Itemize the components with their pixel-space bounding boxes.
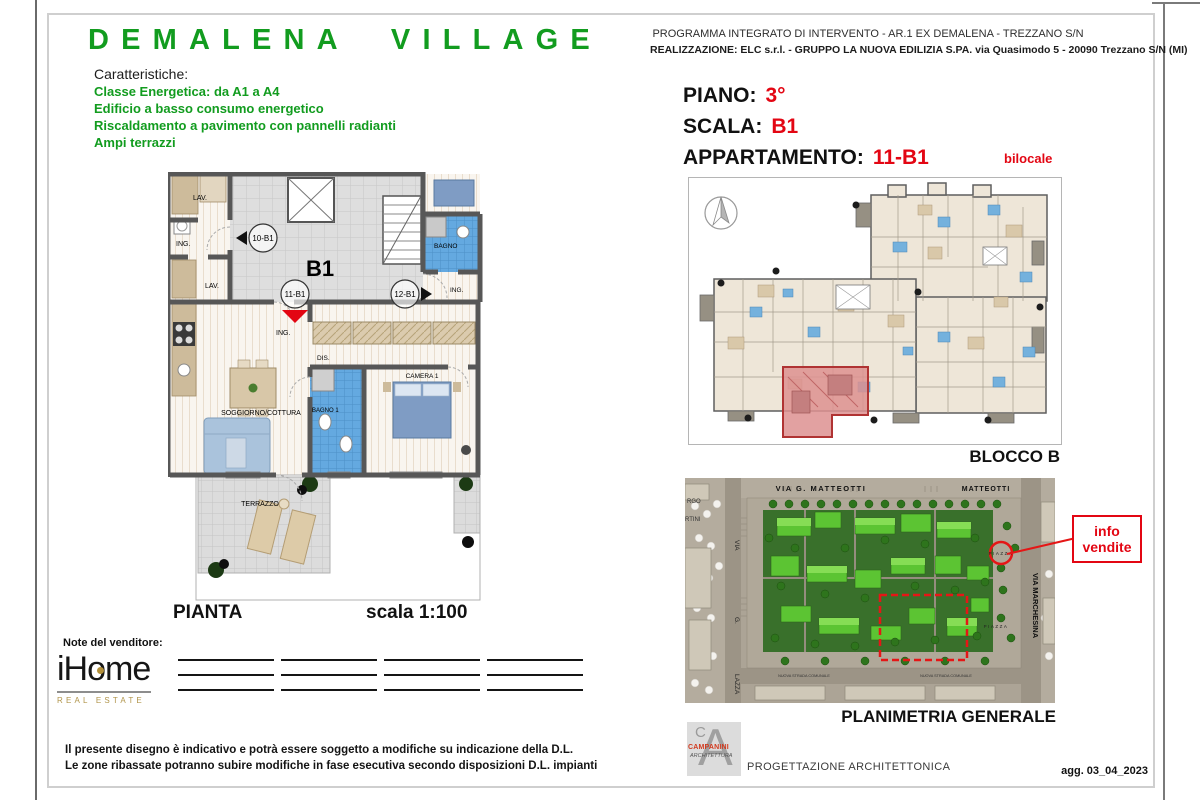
info-vendite-line2: vendite <box>1082 539 1131 555</box>
room-label-bagno1: BAGNO 1 <box>312 408 339 414</box>
ihome-rule <box>57 691 151 693</box>
dining-table <box>230 360 276 416</box>
block-b-plan <box>688 177 1062 445</box>
north-arrow-icon <box>705 197 737 229</box>
revision-date: agg. 03_04_2023 <box>1038 765 1148 777</box>
svg-text:11-B1: 11-B1 <box>285 290 306 299</box>
campanini-name: CAMPANINI <box>688 744 729 751</box>
elevator <box>288 178 334 222</box>
stair-block-label: B1 <box>306 256 334 281</box>
room-label-soggiorno: SOGGIORNO/COTTURA <box>221 410 301 417</box>
seller-notes-label: Note del venditore: <box>63 637 163 649</box>
plan-caption: PIANTA <box>173 602 242 624</box>
note-line <box>178 689 583 691</box>
plan-sheet: DEMALENA VILLAGE Caratteristiche: Classe… <box>0 0 1200 800</box>
campanini-c-glyph: C <box>695 724 706 741</box>
scala-label: SCALA: <box>683 115 762 138</box>
svg-text:10-B1: 10-B1 <box>252 234 274 243</box>
room-label-ing-left: ING. <box>176 241 190 248</box>
tipologia-badge: bilocale <box>1004 151 1052 166</box>
street-matteotti: MATTEOTTI <box>962 486 1011 493</box>
ihome-dot-icon <box>97 667 104 674</box>
room-label-bagno-neighbor: BAGNO <box>434 243 457 250</box>
room-label-ing-apt: ING. <box>276 330 290 337</box>
street-strada-2: NUOVA STRADA COMUNALE <box>920 674 972 678</box>
street-rgo: RGO <box>687 499 701 505</box>
feature-floor-heating: Riscaldamento a pavimento con pannelli r… <box>94 118 396 133</box>
room-label-terrazzo: TERRAZZO <box>241 501 279 508</box>
room-label-ing-right: ING. <box>450 287 464 294</box>
street-rtini: RTINI <box>685 517 701 523</box>
ihome-logo: iHome REAL ESTATE <box>57 650 167 720</box>
appartamento-value: 11-B1 <box>873 146 929 169</box>
street-g: G. <box>733 617 740 624</box>
svg-text:12-B1: 12-B1 <box>394 290 416 299</box>
room-label-camera1: CAMERA 1 <box>406 373 439 380</box>
appartamento-label: APPARTAMENTO: <box>683 146 864 169</box>
sofa <box>204 418 270 474</box>
scala-row: SCALA:B1 <box>683 115 798 139</box>
project-title: DEMALENA VILLAGE <box>88 24 602 57</box>
street-strada-1: NUOVA STRADA COMUNALE <box>778 674 830 678</box>
piano-value: 3° <box>766 84 786 107</box>
site-plan-caption: PLANIMETRIA GENERALE <box>750 707 1056 727</box>
block-b-caption: BLOCCO B <box>860 447 1060 467</box>
feature-energy-class: Classe Energetica: da A1 a A4 <box>94 84 279 99</box>
sheet-fold-line-right <box>1163 2 1165 800</box>
disclaimer: Il presente disegno è indicativo e potrà… <box>65 742 597 774</box>
sheet-trim-tick <box>1152 2 1200 4</box>
room-label-dis: DIS. <box>317 355 330 362</box>
info-vendite-line1: info <box>1094 523 1120 539</box>
note-line <box>178 659 583 661</box>
note-line <box>178 674 583 676</box>
progettazione-label: PROGETTAZIONE ARCHITETTONICA <box>747 761 950 773</box>
feature-terraces: Ampi terrazzi <box>94 135 176 150</box>
info-vendite-box: info vendite <box>1072 515 1142 563</box>
street-via-matteotti: VIA G. MATTEOTTI <box>776 484 867 493</box>
features-heading: Caratteristiche: <box>94 66 188 82</box>
stairs <box>383 196 421 264</box>
wardrobes <box>313 322 475 344</box>
program-header-line2: REALIZZAZIONE: ELC s.r.l. - GRUPPO LA NU… <box>650 44 1086 56</box>
piano-label: PIANO: <box>683 84 757 107</box>
street-via: VIA <box>733 540 740 551</box>
info-vendite-connector <box>1002 528 1080 560</box>
site-plan: VIA G. MATTEOTTI MATTEOTTI RGO RTINI VIA… <box>685 478 1055 703</box>
sheet-fold-line-left <box>35 0 37 800</box>
program-header-line1: PROGRAMMA INTEGRATO DI INTERVENTO - AR.1… <box>650 28 1086 40</box>
piano-row: PIANO:3° <box>683 84 786 108</box>
room-label-lav2: LAV. <box>205 283 219 290</box>
disclaimer-line2: Le zone ribassate potranno subire modifi… <box>65 758 597 774</box>
street-via-marchesina: VIA MARCHESINA <box>1031 573 1040 639</box>
appartamento-row: APPARTAMENTO:11-B1 <box>683 146 929 170</box>
scala-value: B1 <box>771 115 798 138</box>
disclaimer-line1: Il presente disegno è indicativo e potrà… <box>65 742 597 758</box>
campanini-architettura: ARCHITETTURA <box>690 753 732 759</box>
feature-low-consumption: Edificio a basso consumo energetico <box>94 101 324 116</box>
street-lazza: LAZZA <box>733 674 740 695</box>
room-label-lav1: LAV. <box>193 195 207 202</box>
plan-scale: scala 1:100 <box>366 602 467 624</box>
campanini-logo: A C CAMPANINI ARCHITETTURA <box>687 722 741 776</box>
piazza-label-2: PIAZZA <box>984 624 1009 629</box>
ihome-tagline: REAL ESTATE <box>57 696 145 705</box>
kitchen-block <box>172 304 196 396</box>
apartment-floor-plan: 10-B1 11-B1 12-B1 LAV. ING. LAV. B1 BAGN… <box>168 172 483 602</box>
